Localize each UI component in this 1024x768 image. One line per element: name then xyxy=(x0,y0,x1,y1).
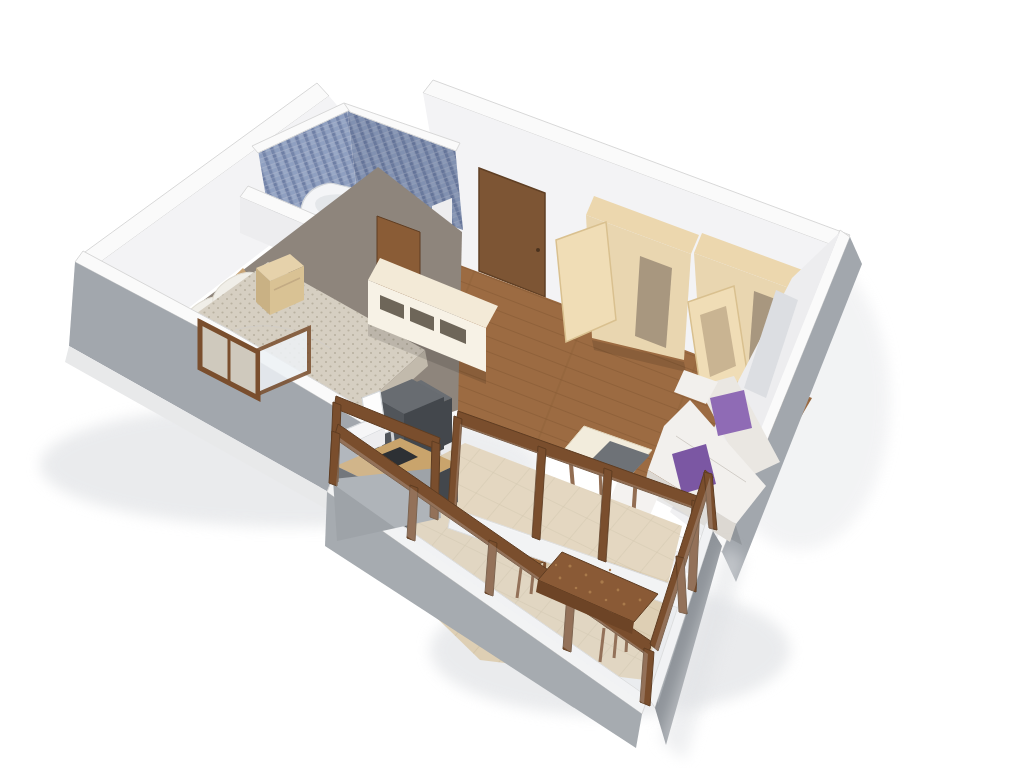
entry-door-handle xyxy=(536,248,540,252)
wardrobe-1-open-door xyxy=(556,222,616,342)
wardrobe-1-inset xyxy=(635,256,672,348)
floorplan-canvas xyxy=(0,0,1024,768)
apartment-3d-render xyxy=(0,0,1024,768)
